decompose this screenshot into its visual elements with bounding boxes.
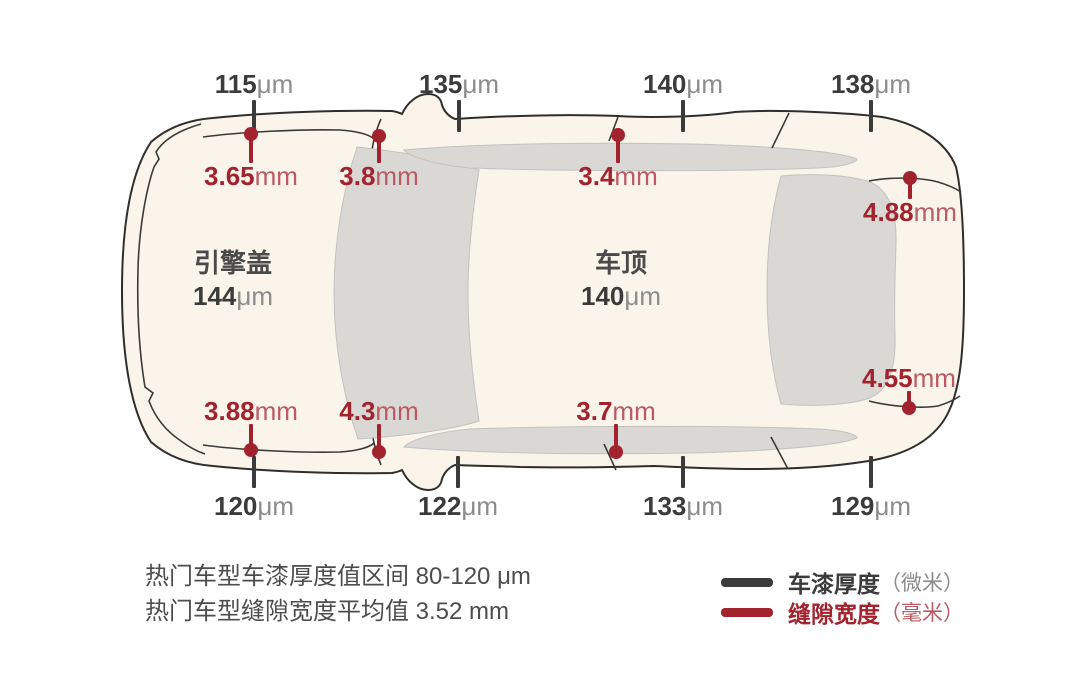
roof-name: 车顶 (581, 247, 661, 280)
paint-thickness-label: 120μm (214, 492, 294, 520)
gap-width-swatch (721, 608, 773, 617)
gap-pin-dot (244, 127, 258, 141)
paint-range-note: 热门车型车漆厚度值区间 80-120 μm (145, 559, 531, 594)
hood-value-line: 144μm (193, 292, 273, 309)
gap-pin-dot (609, 445, 623, 459)
legend: 车漆厚度 （微米） 缝隙宽度 （毫米） (721, 567, 964, 627)
gap-pin-dot (611, 128, 625, 142)
legend-gap-label: 缝隙宽度 (788, 595, 880, 629)
paint-thickness-label: 138μm (831, 70, 911, 98)
paint-thickness-label: 129μm (831, 492, 911, 520)
gap-pin-dot (244, 443, 258, 457)
gap-pin-dot (372, 129, 386, 143)
gap-width-label: 3.4mm (578, 162, 657, 190)
gap-width-label: 3.88mm (204, 397, 298, 425)
gap-width-label: 4.88mm (863, 198, 957, 226)
roof-panel-label: 车顶 140μm (581, 247, 661, 313)
gap-pin-dot (902, 401, 916, 415)
gap-pin-dot (372, 445, 386, 459)
gap-pin-dot (903, 171, 917, 185)
paint-thickness-label: 140μm (643, 70, 723, 98)
paint-tick (252, 456, 256, 488)
paint-tick (869, 456, 873, 488)
legend-paint-label: 车漆厚度 (788, 565, 880, 599)
paint-thickness-label: 115μm (215, 70, 294, 98)
paint-tick (681, 456, 685, 488)
gap-average-note: 热门车型缝隙宽度平均值 3.52 mm (145, 594, 531, 629)
legend-row-gap: 缝隙宽度 （毫米） (721, 597, 964, 627)
gap-width-label: 4.55mm (862, 364, 956, 392)
paint-thickness-label: 135μm (419, 70, 499, 98)
legend-gap-unit: （毫米） (880, 597, 964, 627)
legend-paint-unit: （微米） (880, 567, 964, 597)
paint-thickness-label: 133μm (643, 492, 723, 520)
paint-tick (457, 100, 461, 132)
hood-panel-label: 引擎盖 144μm (193, 247, 273, 313)
paint-thickness-label: 122μm (418, 492, 498, 520)
gap-width-label: 3.7mm (576, 397, 655, 425)
gap-width-label: 3.65mm (204, 162, 298, 190)
footnotes: 热门车型车漆厚度值区间 80-120 μm 热门车型缝隙宽度平均值 3.52 m… (145, 559, 531, 629)
gap-width-label: 4.3mm (339, 397, 418, 425)
roof-value-line: 140μm (581, 292, 661, 309)
legend-row-paint: 车漆厚度 （微米） (721, 567, 964, 597)
car-measurement-diagram: 115μm135μm140μm138μm120μm122μm133μm129μm… (0, 0, 1080, 684)
gap-width-label: 3.8mm (339, 162, 418, 190)
paint-tick (456, 456, 460, 488)
paint-thickness-swatch (721, 578, 773, 587)
paint-tick (681, 100, 685, 132)
paint-tick (869, 100, 873, 132)
hood-name: 引擎盖 (193, 247, 273, 280)
